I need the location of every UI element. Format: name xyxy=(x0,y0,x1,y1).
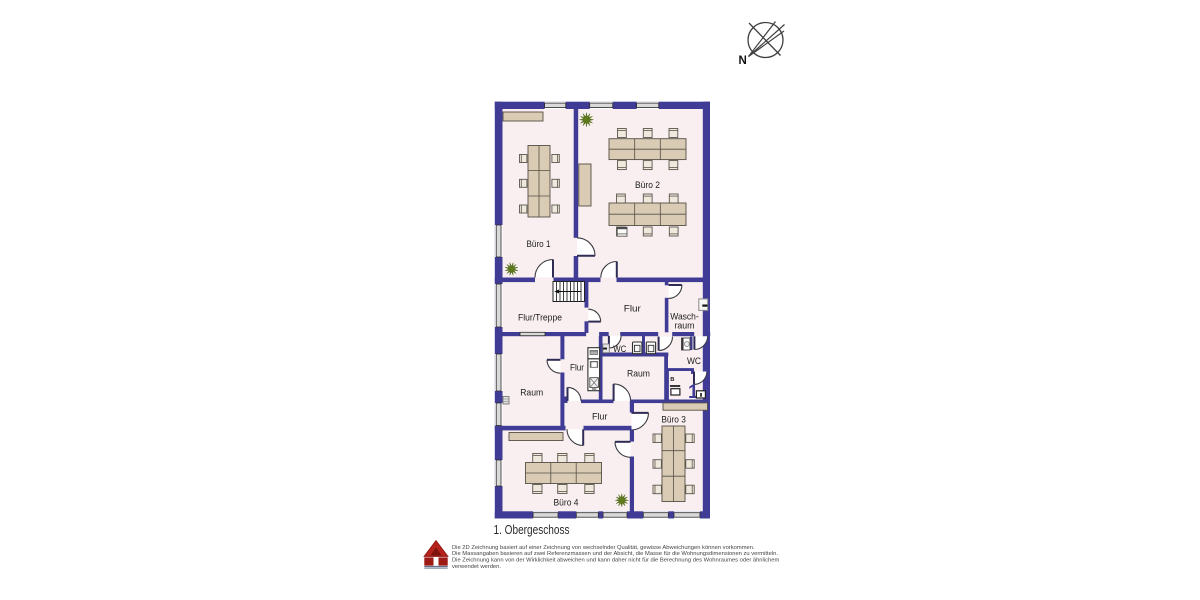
svg-text:N: N xyxy=(739,55,747,67)
svg-text:1. Obergeschoss: 1. Obergeschoss xyxy=(494,522,570,537)
svg-text:Raum: Raum xyxy=(520,387,543,397)
svg-text:Büro 4: Büro 4 xyxy=(554,497,579,507)
svg-text:Die 2D Zeichnung basiert auf e: Die 2D Zeichnung basiert auf einer Zeich… xyxy=(452,545,755,551)
svg-text:WC: WC xyxy=(687,356,701,366)
svg-text:Flur: Flur xyxy=(624,303,641,313)
svg-text:Büro 1: Büro 1 xyxy=(527,239,551,249)
svg-text:B: B xyxy=(670,377,674,383)
svg-text:Büro 3: Büro 3 xyxy=(661,414,686,424)
svg-text:Die Zeichnung kann von der Wir: Die Zeichnung kann von der Wirklichkeit … xyxy=(452,558,779,564)
svg-text:WC: WC xyxy=(613,344,626,354)
svg-text:Die Massangaben basieren auf z: Die Massangaben basieren auf zwei Refere… xyxy=(452,551,778,557)
svg-text:Büro 2: Büro 2 xyxy=(635,180,660,190)
svg-text:Flur: Flur xyxy=(570,363,584,373)
svg-text:Flur/Treppe: Flur/Treppe xyxy=(518,313,562,323)
svg-text:Flur: Flur xyxy=(592,412,608,422)
svg-text:raum: raum xyxy=(675,320,695,330)
svg-text:verwendet werden.: verwendet werden. xyxy=(452,564,501,570)
svg-text:Raum: Raum xyxy=(627,369,650,379)
